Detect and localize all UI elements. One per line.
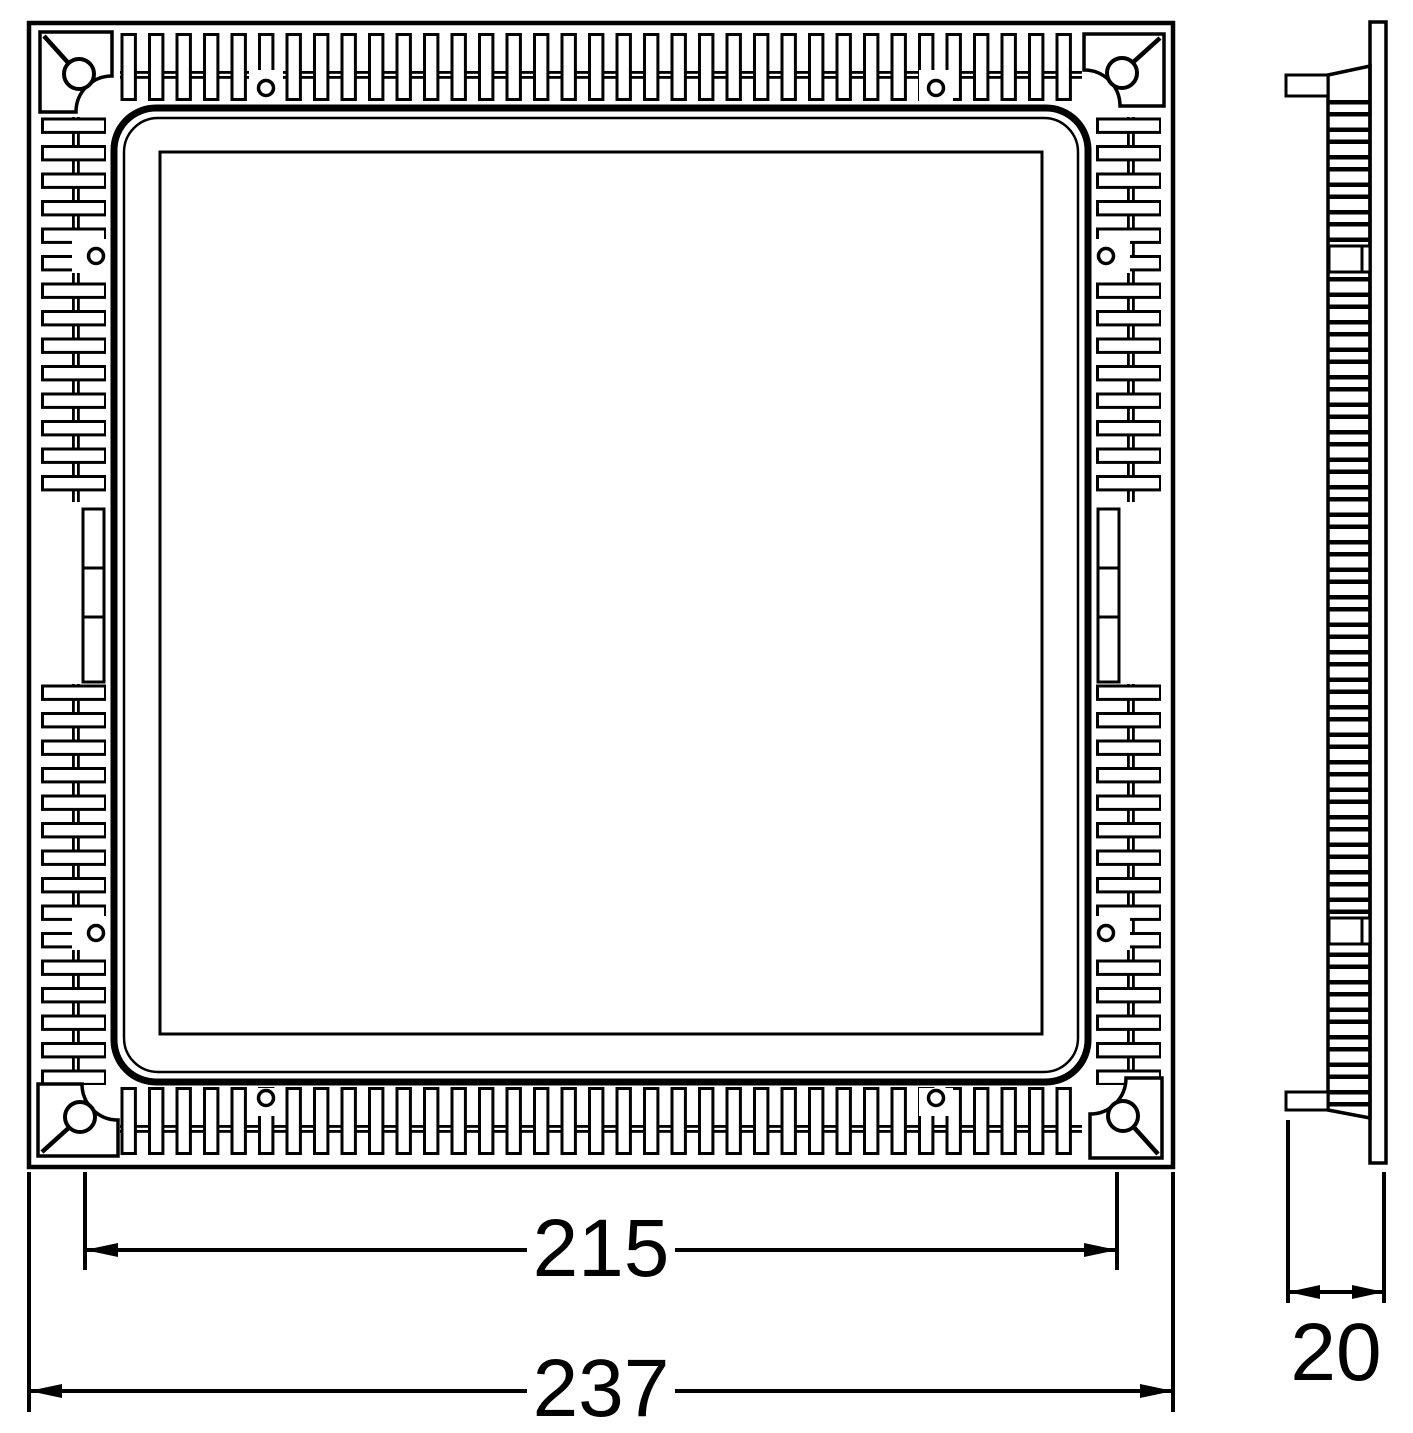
side-view	[1286, 22, 1386, 1163]
side-flange-bar	[1370, 22, 1386, 1163]
clip-housing-left	[83, 509, 104, 682]
technical-drawing: 215 237 20	[0, 0, 1413, 1433]
fin-strip-left-upper	[41, 117, 106, 502]
side-screw-segment-upper	[1329, 246, 1370, 272]
fin-strip-left-lower	[41, 684, 106, 1085]
dim-20-label: 20	[1290, 1307, 1381, 1398]
screw-hole-right-upper	[1094, 239, 1130, 273]
screw-hole-right-lower	[1094, 916, 1130, 950]
arrowhead-right-icon	[1084, 1243, 1117, 1257]
screw-hole-left-lower	[72, 916, 108, 950]
light-aperture	[160, 152, 1042, 1034]
arrowhead-right-icon	[1140, 1384, 1173, 1398]
dim-215-label: 215	[533, 1203, 670, 1294]
screw-hole-bottom-left	[249, 1088, 283, 1116]
side-clip-tab-top	[1286, 75, 1328, 96]
screw-hole-left-upper	[72, 239, 108, 273]
side-finned-body	[1328, 66, 1370, 1118]
technical-drawing-canvas: 215 237 20	[0, 0, 1413, 1433]
dim-237-label: 237	[533, 1343, 670, 1433]
arrowhead-right-icon	[1352, 1285, 1384, 1299]
arrowhead-left-icon	[85, 1243, 118, 1257]
side-screw-segment-lower	[1329, 918, 1370, 944]
screw-hole-top-right	[919, 70, 953, 103]
clip-housing-right	[1098, 509, 1119, 682]
fin-strip-right-upper	[1096, 117, 1161, 502]
front-view	[29, 23, 1173, 1167]
screw-hole-top-left	[249, 70, 283, 103]
fin-strip-right-lower	[1096, 684, 1161, 1085]
arrowhead-left-icon	[29, 1384, 62, 1398]
side-clip-tab-bottom	[1286, 1092, 1328, 1110]
arrowhead-left-icon	[1288, 1285, 1320, 1299]
screw-hole-bottom-right	[919, 1088, 953, 1116]
